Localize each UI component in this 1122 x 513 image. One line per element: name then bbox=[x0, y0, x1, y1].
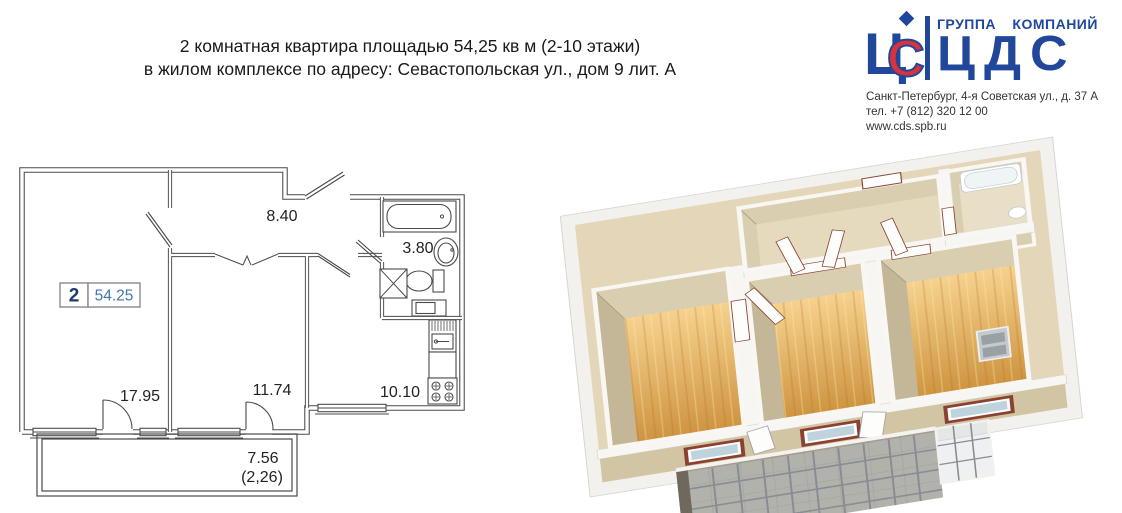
title-line-2: в жилом комплексе по адресу: Севастополь… bbox=[55, 58, 765, 81]
plan-label-balcony: 7.56 bbox=[247, 450, 278, 467]
bathroom-door bbox=[356, 240, 382, 263]
kitchen-3d bbox=[878, 237, 1029, 402]
open-sash-3d bbox=[859, 412, 886, 438]
badge-area-value: 54.25 bbox=[95, 288, 134, 305]
sink-icon bbox=[434, 238, 458, 266]
company-logo-block: Ц С ГРУППА КОМПАНИЙ ЦДС Санкт-Петербург,… bbox=[866, 8, 1118, 135]
logo-brand-name: ЦДС bbox=[937, 32, 1098, 76]
plan-label-bathroom: 3.80 bbox=[402, 240, 433, 257]
logo-divider-bar bbox=[925, 16, 930, 80]
washing-machine-icon bbox=[412, 300, 446, 316]
plan-label-balcony-coef: (2,26) bbox=[241, 469, 283, 486]
kitchen-sink-icon bbox=[429, 320, 456, 352]
kitchen-counter bbox=[429, 352, 456, 378]
living-room-3d bbox=[594, 269, 744, 448]
cds-logo-mark-icon: Ц С bbox=[866, 8, 932, 84]
plan-label-hallway: 8.40 bbox=[266, 208, 297, 225]
page-title: 2 комнатная квартира площадью 54,25 кв м… bbox=[55, 35, 765, 81]
plan-label-bedroom: 11.74 bbox=[253, 382, 292, 399]
stove-icon bbox=[428, 378, 457, 404]
logo-mark-letter-s: С bbox=[887, 30, 925, 84]
opening-mark bbox=[215, 254, 278, 265]
balcony-railing-3d bbox=[936, 420, 994, 483]
balcony-door-2 bbox=[246, 402, 273, 429]
toilet-icon bbox=[406, 270, 444, 292]
phone-line: тел. +7 (812) 320 12 00 bbox=[866, 105, 1118, 120]
floor-plan-2d: 2 54.25 8.40 3.80 17.95 11.74 10.10 7.56… bbox=[0, 150, 500, 513]
plan-label-living-room: 17.95 bbox=[120, 388, 160, 405]
living-room-door bbox=[146, 212, 172, 247]
shaft-icon bbox=[380, 269, 407, 298]
kitchen-door bbox=[318, 254, 350, 278]
kitchen-sink-3d bbox=[977, 327, 1011, 362]
render-3d bbox=[552, 126, 1122, 513]
bedroom-3d bbox=[746, 261, 878, 423]
badge-room-count: 2 bbox=[69, 286, 80, 307]
flyer-page: 2 комнатная квартира площадью 54,25 кв м… bbox=[0, 0, 1122, 513]
windows bbox=[30, 404, 389, 438]
apartment-badge: 2 54.25 bbox=[60, 283, 140, 307]
entrance-door bbox=[305, 172, 345, 199]
plan-label-kitchen: 10.10 bbox=[380, 384, 420, 401]
door-leaves bbox=[146, 172, 382, 277]
address-line: Санкт-Петербург, 4-я Советская ул., д. 3… bbox=[866, 90, 1118, 105]
bathtub-icon bbox=[383, 201, 456, 232]
title-line-1: 2 комнатная квартира площадью 54,25 кв м… bbox=[55, 35, 765, 58]
